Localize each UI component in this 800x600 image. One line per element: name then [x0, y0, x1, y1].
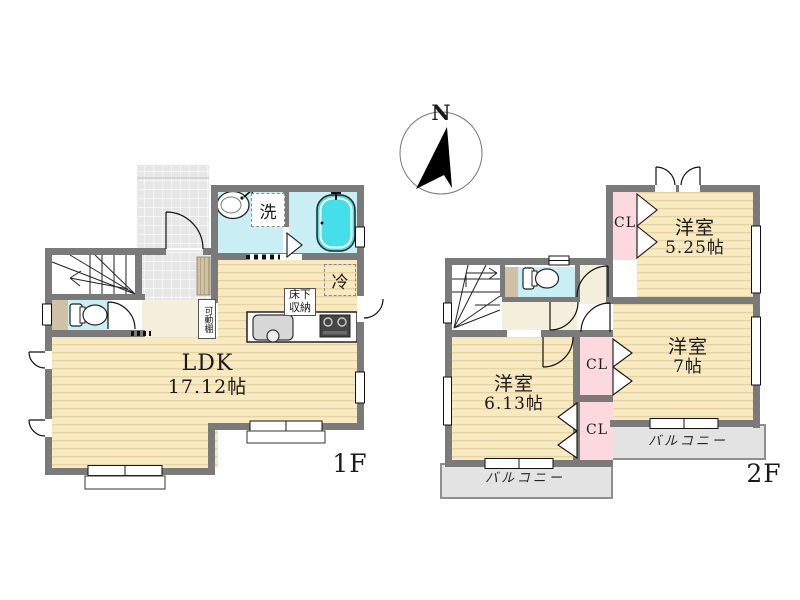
hall-floor-2f-b — [580, 265, 606, 302]
casement-window-3 — [656, 167, 675, 185]
toilet-icon-1f — [70, 304, 107, 326]
underfloor-storage-label: 床下収納 — [284, 288, 316, 316]
bedroom-a-name: 洋室 — [675, 217, 715, 239]
bedroom-b-size: 7帖 — [633, 358, 743, 377]
back-door — [364, 299, 383, 318]
bedroom-c-name: 洋室 — [494, 373, 534, 395]
toilet-icon-2f — [523, 268, 559, 289]
closet-b-label: CL — [577, 358, 617, 374]
bedroom-b-label: 洋室 7帖 — [633, 337, 743, 377]
bedroom-b-entry — [577, 304, 613, 330]
toilet-cabinet-1f — [52, 297, 68, 330]
shoe-cabinet — [197, 257, 210, 295]
ldk-size: 17.12帖 — [130, 377, 285, 398]
casement-window-4 — [681, 167, 700, 185]
compass-north-label: N — [428, 101, 454, 125]
fridge-label: 冷 — [324, 264, 356, 296]
balcony-left-label: バルコニー — [443, 472, 607, 487]
bedroom-b-name: 洋室 — [668, 336, 708, 358]
closet-c-label: CL — [577, 423, 617, 439]
movable-shelf-label: 可動棚 — [198, 299, 216, 339]
bedroom-a-size: 5.25帖 — [640, 239, 750, 258]
floor2-tag: 2F — [731, 460, 797, 488]
floor-plan-canvas: N LDK 17.12帖 洗 冷 床下収納 可動棚 1F 2F 洋室 5.25帖… — [0, 0, 800, 600]
casement-window-2 — [29, 420, 45, 436]
bathtub-icon — [317, 193, 355, 251]
toilet-cabinet-2f — [505, 267, 518, 297]
closet-a-label: CL — [609, 216, 641, 232]
balcony-right-label: バルコニー — [613, 435, 763, 450]
floor-plan-drawing — [0, 0, 800, 600]
bedroom-a-label: 洋室 5.25帖 — [640, 218, 750, 258]
stairs-floor-2f — [452, 265, 500, 330]
kitchen-sink-icon — [253, 315, 293, 342]
ldk-label: LDK 17.12帖 — [130, 352, 285, 398]
bedroom-c-size: 6.13帖 — [458, 395, 570, 414]
ldk-name: LDK — [182, 351, 234, 376]
floor1-tag: 1F — [318, 450, 382, 478]
bedroom-c-label: 洋室 6.13帖 — [458, 374, 570, 414]
casement-window-1 — [29, 352, 45, 368]
washroom-label: 洗 — [251, 193, 285, 227]
stove-icon — [320, 315, 350, 337]
kitchen-counter — [247, 312, 357, 342]
